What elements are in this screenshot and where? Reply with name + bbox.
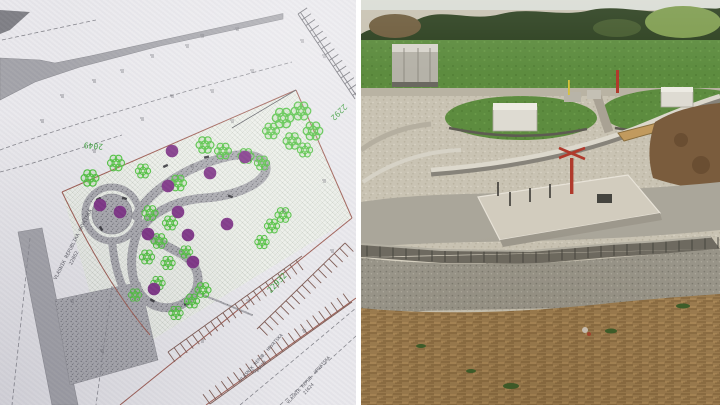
tree-symbol (195, 283, 211, 298)
tree-symbol (264, 219, 279, 233)
purple-planting-dot (182, 229, 195, 242)
dry-bushes (369, 14, 421, 38)
dark-bush (593, 19, 641, 37)
tree-symbol (169, 306, 183, 319)
tree-symbol (142, 206, 158, 221)
dirt-clump (692, 156, 710, 174)
before-after-collage: 2049 2292 22932 VLASNIK REPUBLIKA HRVATS… (0, 0, 720, 405)
purple-planting-dot (114, 206, 127, 219)
purple-planting-dot (94, 199, 107, 212)
tree-symbol (139, 250, 154, 264)
red-standpipe (570, 158, 573, 194)
tree-symbol (128, 289, 142, 301)
tree-symbol (215, 143, 232, 159)
tree-symbol (196, 137, 214, 153)
tree-symbol (263, 123, 280, 139)
light-trees-right (645, 6, 720, 38)
tree-symbol (255, 235, 269, 248)
tree-symbol (283, 133, 301, 149)
tree-symbol (297, 143, 312, 157)
purple-planting-dot (162, 180, 175, 193)
site-plan-drawing: 2049 2292 22932 VLASNIK REPUBLIKA HRVATS… (0, 0, 356, 405)
yellow-stake (568, 80, 570, 95)
block-pallet (392, 44, 438, 87)
tree-symbol (184, 294, 199, 308)
purple-planting-dot (187, 256, 200, 269)
purple-planting-dot (142, 228, 155, 241)
purple-planting-dot (166, 145, 179, 158)
tree-symbol (108, 155, 125, 171)
tree-symbol (135, 164, 150, 178)
construction-photo-svg (361, 0, 720, 405)
site-plan-svg: 2049 2292 22932 VLASNIK REPUBLIKA HRVATS… (0, 0, 356, 405)
purple-planting-dot (172, 206, 185, 219)
dark-block-on-pad (597, 194, 612, 203)
construction-photo (361, 0, 720, 405)
tree-symbol (254, 156, 269, 170)
tree-symbol (162, 216, 177, 230)
red-marker-post (616, 70, 619, 93)
tree-symbol (303, 122, 323, 140)
tree-symbol (291, 102, 311, 120)
parcel-label-2049: 2049 (83, 140, 103, 151)
dirt-clump (674, 133, 688, 147)
purple-planting-dot (221, 218, 234, 231)
purple-planting-dot (239, 151, 252, 164)
tree-symbol (161, 256, 175, 269)
circular-plaza (85, 187, 139, 241)
purple-planting-dot (148, 283, 161, 296)
purple-planting-dot (204, 167, 217, 180)
tree-symbol (81, 170, 99, 186)
